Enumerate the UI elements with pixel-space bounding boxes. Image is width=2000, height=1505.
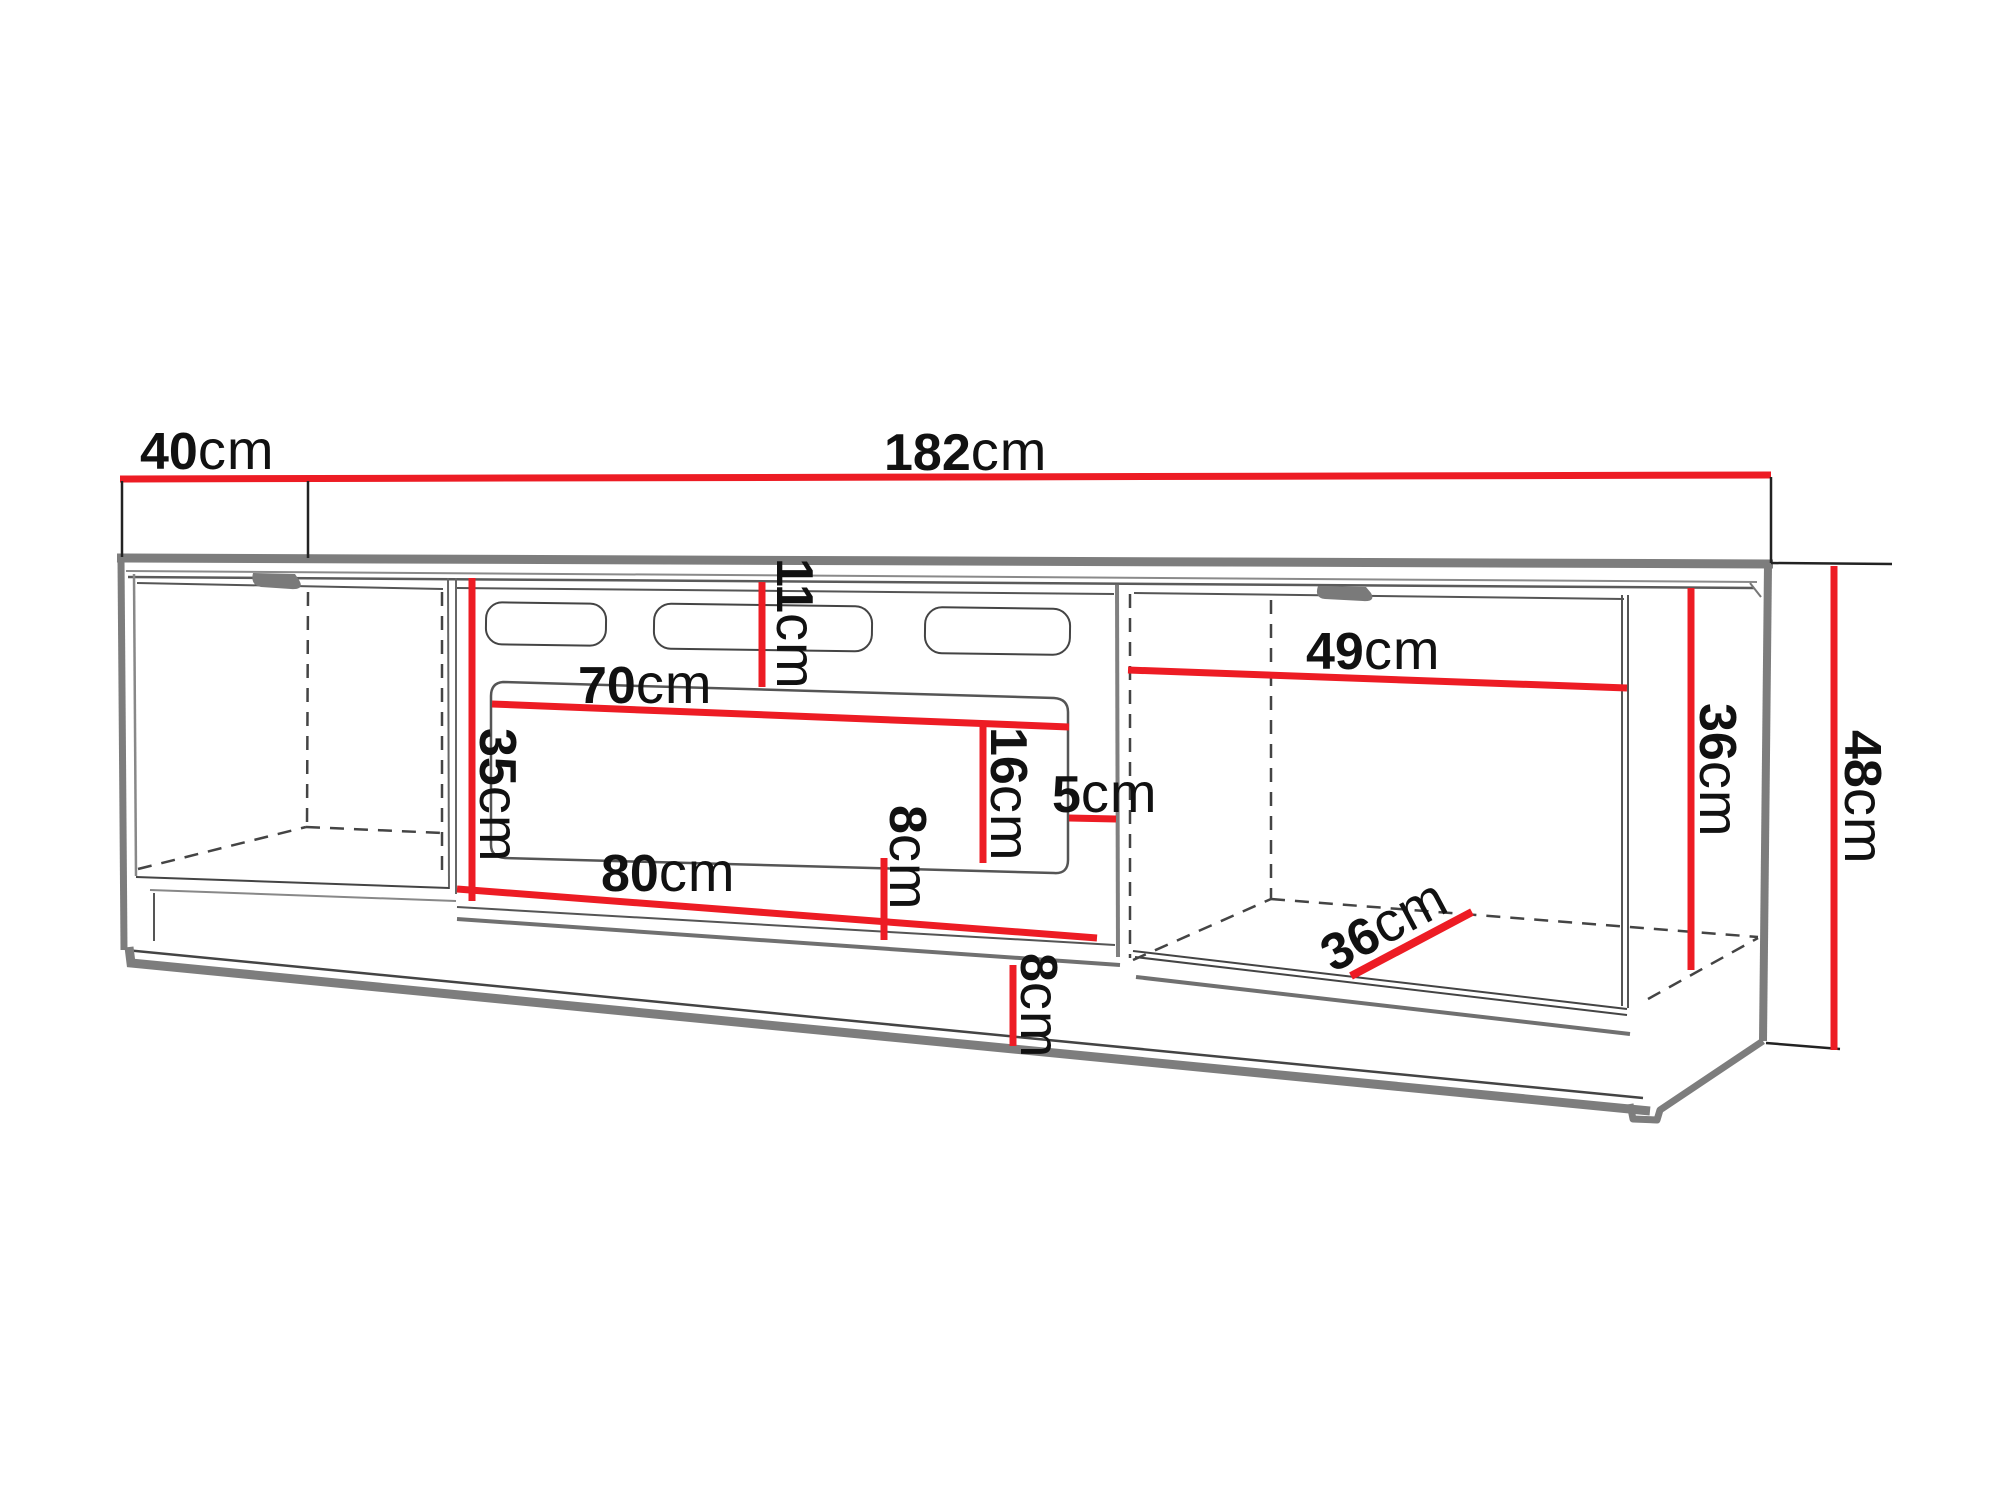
- svg-text:70cm: 70cm: [578, 652, 713, 715]
- svg-text:80cm: 80cm: [601, 840, 736, 903]
- svg-text:40cm: 40cm: [140, 418, 275, 481]
- svg-text:16cm: 16cm: [979, 727, 1042, 862]
- svg-text:48cm: 48cm: [1833, 730, 1896, 865]
- svg-text:5cm: 5cm: [1052, 761, 1158, 824]
- svg-text:11cm: 11cm: [765, 558, 828, 690]
- svg-text:182cm: 182cm: [884, 419, 1047, 482]
- svg-text:8cm: 8cm: [878, 805, 941, 911]
- svg-text:8cm: 8cm: [1009, 953, 1072, 1059]
- svg-text:35cm: 35cm: [468, 728, 531, 863]
- svg-text:36cm: 36cm: [1688, 703, 1751, 838]
- svg-text:49cm: 49cm: [1306, 618, 1441, 681]
